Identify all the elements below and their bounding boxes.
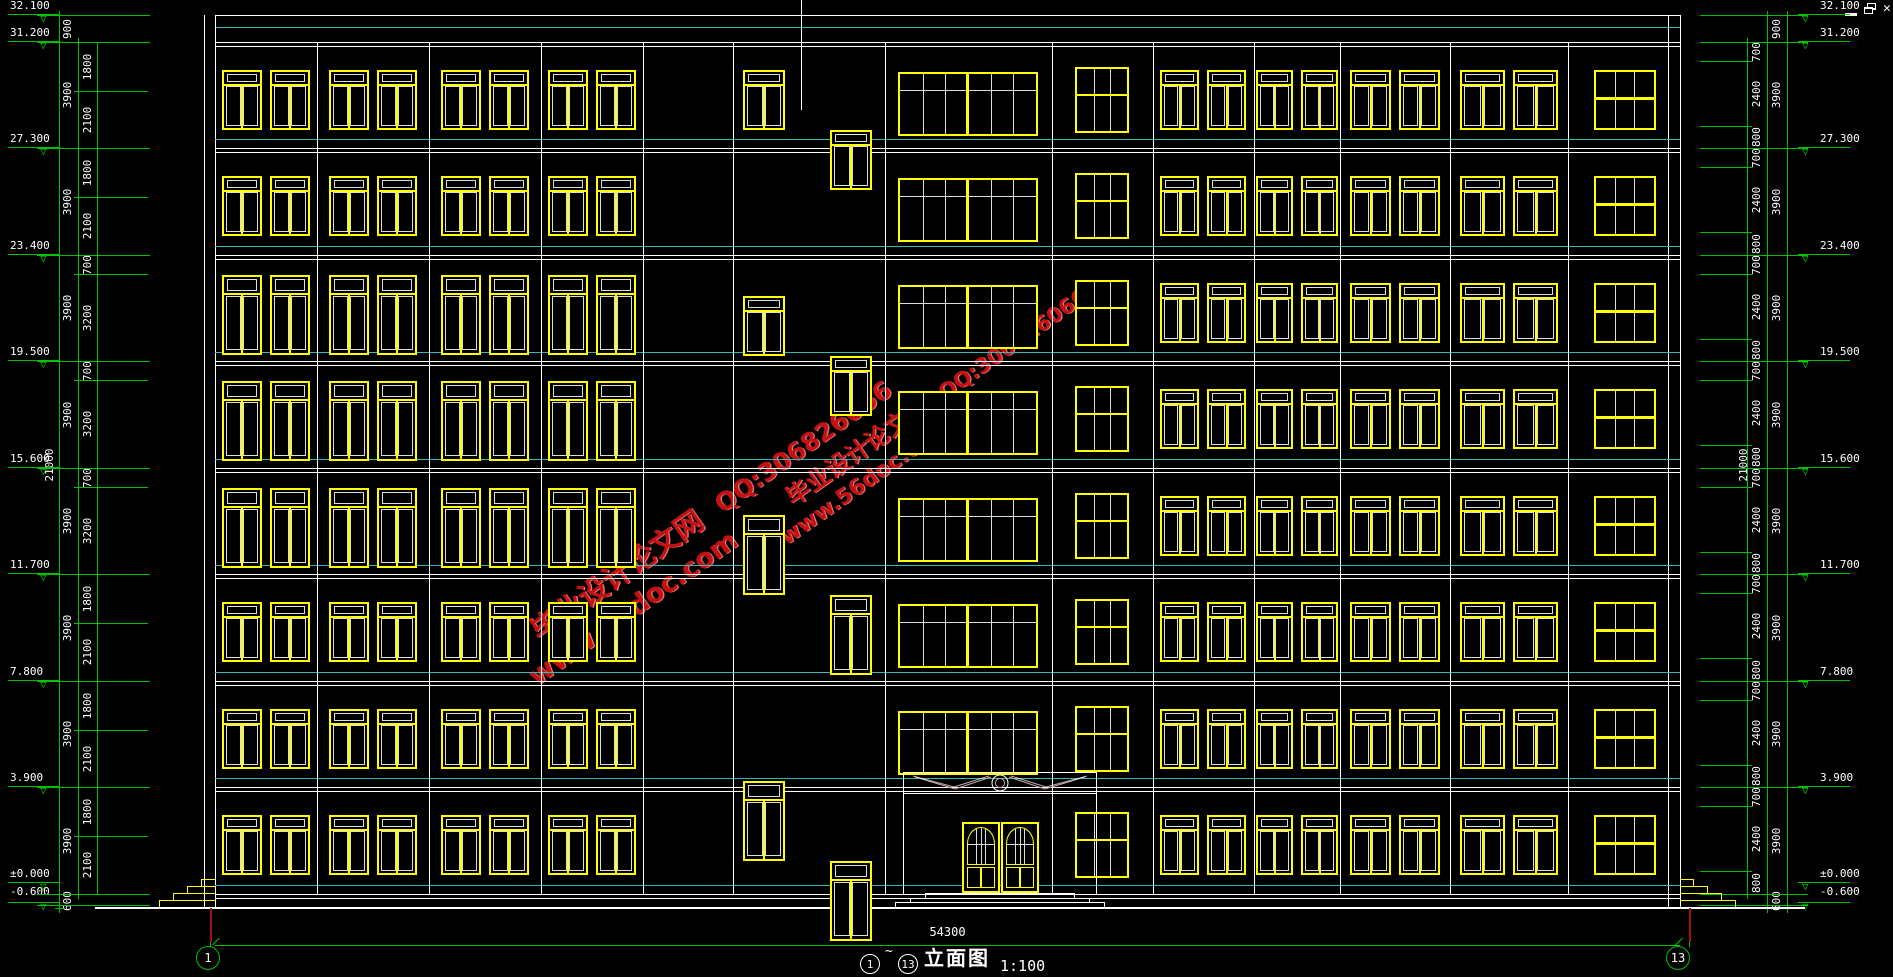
elevation-label: 27.300 [10,133,50,145]
elevation-label: -0.600 [10,886,50,898]
window [329,709,417,769]
window [743,781,785,861]
slab-line [215,672,1680,673]
dim-value: 2100 [82,98,94,142]
extension-line [1700,765,1747,766]
bay-divider [1254,42,1255,894]
floor-line [215,255,1680,256]
extension-line [78,91,148,92]
elevation-marker-line [8,902,60,903]
bay-divider [541,42,542,894]
elevation-label: 23.400 [10,240,50,252]
floor-line [215,361,1680,362]
window [830,130,872,190]
extension-line [1700,42,1808,43]
extension-line [1700,806,1747,807]
floor-line [215,152,1680,153]
window [441,176,529,236]
entrance-canopy [903,772,1097,794]
dim-value: 3900 [62,499,74,543]
extension-line [1700,61,1747,62]
elevation-marker-line [8,882,60,883]
triple-window [1594,602,1656,662]
extension-line [78,730,148,731]
dim-value: 700 [1751,349,1763,393]
dim-value: 3900 [1771,180,1783,224]
extension-line [78,380,148,381]
dim-value: 3900 [62,393,74,437]
extension-line [37,361,150,362]
bay-divider [643,42,644,894]
dim-value: 3200 [82,402,94,446]
window [441,709,529,769]
axis-stub [1689,942,1690,947]
side-steps [201,879,215,886]
elevation-label: 11.700 [10,559,50,571]
window [222,815,310,875]
extension-line [37,468,150,469]
window [1256,496,1338,556]
dim-value: 3900 [1771,712,1783,756]
extension-line [37,894,150,895]
dim-value: 1800 [82,684,94,728]
side-steps [1680,900,1736,907]
window [830,356,872,416]
dim-value: 700 [82,349,94,393]
window [329,602,417,662]
window [441,275,529,355]
window [329,176,417,236]
side-steps [187,886,215,893]
entrance-door [1001,822,1039,893]
building-outline [215,15,1680,16]
dim-value: 1800 [82,45,94,89]
bay-divider [1340,42,1341,894]
window [1256,815,1338,875]
elevation-label: 27.300 [1820,133,1860,145]
dim-value: 3900 [1771,73,1783,117]
dim-value: 2400 [1751,817,1763,861]
window [1460,496,1558,556]
dim-value: 2100 [82,737,94,781]
landing-window [898,72,1038,136]
extension-line [1700,658,1747,659]
square-window [1075,493,1129,559]
landing-window [898,711,1038,775]
window [1460,176,1558,236]
elevation-label: 19.500 [10,346,50,358]
elevation-label: ±0.000 [10,868,50,880]
bay-divider [1153,42,1154,894]
slab-line [215,246,1680,247]
window [1160,602,1246,662]
window [329,70,417,130]
title-axis-start: 1 [860,954,880,974]
dim-value: 800 [1751,861,1763,905]
extension-line [37,574,150,575]
elevation-label: 31.200 [10,27,50,39]
window [1350,815,1440,875]
bay-divider [1052,42,1053,894]
square-window [1075,599,1129,665]
elevation-label: 15.600 [1820,453,1860,465]
window [548,488,636,568]
elevation-label: 11.700 [1820,559,1860,571]
bay-divider [429,42,430,894]
window [329,275,417,355]
window [1350,709,1440,769]
triple-window [1594,389,1656,449]
window [743,296,785,356]
window [222,602,310,662]
window [1256,389,1338,449]
dim-value: 3900 [1771,499,1783,543]
restore-icon[interactable] [1864,3,1876,15]
bay-divider [885,42,886,894]
dim-value: 2100 [82,204,94,248]
landing-window [898,178,1038,242]
dim-value: 2400 [1751,604,1763,648]
extension-line [1700,445,1747,446]
axis-line [1689,908,1691,942]
dim-value: 2400 [1751,498,1763,542]
dim-value: 2400 [1751,72,1763,116]
slab-line [215,27,1680,28]
floor-line [215,472,1680,473]
extension-line [78,623,148,624]
dim-value: 700 [1751,562,1763,606]
window [1350,70,1440,130]
title-tilde: ~ [885,946,893,958]
window [548,176,636,236]
building-outline [1680,15,1681,908]
dim-value: 3900 [1771,286,1783,330]
window [1350,283,1440,343]
dim-value: 3900 [1771,606,1783,650]
bay-divider [733,42,734,894]
elevation-triangle-icon: ▽ [40,902,47,912]
extension-line [37,42,150,43]
dim-value: 1800 [82,790,94,834]
floor-line [215,42,1680,43]
triple-window [1594,815,1656,875]
floor-line [215,148,1680,149]
floor-line [215,259,1680,260]
entrance-door [962,822,1000,893]
window [329,381,417,461]
axis-bubble-13: 13 [1666,946,1690,970]
ground-line [95,907,1805,909]
floor-line [215,468,1680,469]
slab-line [215,459,1680,460]
elevation-label: 32.100 [1820,0,1860,12]
dim-value: 3200 [82,296,94,340]
elevation-label: 3.900 [10,772,43,784]
window [1256,176,1338,236]
dim-value: 2400 [1751,285,1763,329]
slab-line [215,139,1680,140]
floor-line [215,46,1680,47]
side-steps [1680,886,1708,893]
window [1256,709,1338,769]
square-window [1075,812,1129,878]
slab-line [215,565,1680,566]
dim-value: 700 [1751,30,1763,74]
side-steps [159,900,215,907]
window [222,709,310,769]
dim-value: 3900 [62,180,74,224]
triple-window [1594,283,1656,343]
triple-window [1594,709,1656,769]
building-outline [204,15,205,908]
slab-line [215,352,1680,353]
landing-window [898,391,1038,455]
extension-line [1700,339,1747,340]
window [548,815,636,875]
triple-window [1594,70,1656,130]
window [548,275,636,355]
extension-line [1700,487,1747,488]
dim-value: 3900 [1771,819,1783,863]
elevation-label: 3.900 [1820,772,1853,784]
dim-value: 2400 [1751,178,1763,222]
title-name: 立面图 [924,952,990,964]
title-scale: 1:100 [1000,960,1045,972]
elevation-label: 23.400 [1820,240,1860,252]
dim-value: 600 [1771,879,1783,923]
cad-elevation-canvas: ✕ 54300 21000 21000 1 13 1 ~ 13 立面图 1:10… [0,0,1893,977]
extension-line [1700,871,1747,872]
dim-value: 600 [62,879,74,923]
elevation-label: 15.600 [10,453,50,465]
dim-value: 700 [82,456,94,500]
axis-bubble-1: 1 [196,946,220,970]
slab-line [215,885,1680,886]
floor-line [215,681,1680,682]
window [1256,70,1338,130]
extension-line [1700,15,1808,16]
dim-value: 3900 [62,819,74,863]
extension-line [1700,380,1747,381]
window [1460,709,1558,769]
window [1160,176,1246,236]
window [329,815,417,875]
window [830,595,872,675]
extension-line [1700,681,1808,682]
triple-window [1594,176,1656,236]
entrance-post [903,794,904,894]
bay-divider [1450,42,1451,894]
extension-line [1700,574,1808,575]
window [441,488,529,568]
extension-line [1700,274,1747,275]
extension-line [78,274,148,275]
elevation-label: 32.100 [10,0,50,12]
extension-line [37,681,150,682]
dim-value: 700 [1751,669,1763,713]
window [1460,70,1558,130]
extension-line [1700,787,1808,788]
window [222,176,310,236]
extension-line [78,836,148,837]
overall-width-dim: 54300 [900,926,995,938]
dim-value: 3900 [62,712,74,756]
dim-value: 2100 [82,630,94,674]
extension-line [37,15,150,16]
elevation-label: 31.200 [1820,27,1860,39]
floor-line [215,365,1680,366]
dim-value: 700 [1751,136,1763,180]
window [1160,70,1246,130]
square-window [1075,173,1129,239]
dim-value: 3900 [62,73,74,117]
floor-line [215,578,1680,579]
window [548,709,636,769]
extension-line [78,197,148,198]
dim-value: 3200 [82,509,94,553]
entrance-post [1096,794,1097,894]
construction-line [801,0,802,110]
extension-line [1700,700,1747,701]
window [1460,389,1558,449]
axis-line [210,908,212,942]
side-steps [173,893,215,900]
extension-line [37,787,150,788]
extension-line [1700,232,1747,233]
axis-stub [210,942,211,947]
elevation-label: ±0.000 [1820,868,1860,880]
floor-line [215,574,1680,575]
title-axis-end: 13 [898,954,918,974]
dim-value: 700 [1751,775,1763,819]
square-window [1075,706,1129,772]
extension-line [1700,552,1747,553]
elevation-triangle-icon: ▽ [1802,882,1809,892]
extension-line [1700,255,1808,256]
bay-divider [317,42,318,894]
window [743,70,785,130]
landing-window [898,498,1038,562]
dim-value: 900 [1771,7,1783,51]
window [830,861,872,941]
window [1256,283,1338,343]
square-window [1075,67,1129,133]
landing-window [898,604,1038,668]
window [222,70,310,130]
window [1256,602,1338,662]
dim-value: 3900 [1771,393,1783,437]
window [1460,815,1558,875]
window [548,381,636,461]
extension-line [1700,468,1808,469]
dim-value: 1800 [82,151,94,195]
window [441,70,529,130]
window [222,275,310,355]
square-window [1075,280,1129,346]
window [222,381,310,461]
extension-line [1700,167,1747,168]
dim-value: 3900 [62,286,74,330]
window [1350,176,1440,236]
extension-line [78,487,148,488]
dim-value: 2100 [82,843,94,887]
window [441,602,529,662]
extension-line [1700,361,1808,362]
dim-value: 2400 [1751,711,1763,755]
window [548,602,636,662]
window [1460,602,1558,662]
elevation-label: 7.800 [1820,666,1853,678]
window [441,815,529,875]
window [1160,389,1246,449]
dim-value: 1800 [82,577,94,621]
dim-value: 3900 [62,606,74,650]
floor-line [215,685,1680,686]
dim-value: 700 [1751,243,1763,287]
window [1160,283,1246,343]
window [548,70,636,130]
elevation-label: -0.600 [1820,886,1860,898]
window [743,515,785,595]
window [1160,496,1246,556]
entrance-steps [895,902,1105,907]
landing-window [898,285,1038,349]
extension-line [37,148,150,149]
elevation-label: 7.800 [10,666,43,678]
extension-line [1700,126,1747,127]
triple-window [1594,496,1656,556]
window [1350,389,1440,449]
window [441,381,529,461]
overall-dim-line [215,945,1680,946]
dim-value: 2400 [1751,391,1763,435]
window [1350,496,1440,556]
extension-line [1700,148,1808,149]
window [1160,815,1246,875]
window [1160,709,1246,769]
dim-value: 700 [82,243,94,287]
window [222,488,310,568]
elevation-label: 19.500 [1820,346,1860,358]
extension-line [37,255,150,256]
bay-divider [1568,42,1569,894]
extension-line [37,905,150,906]
window [329,488,417,568]
extension-line [1700,593,1747,594]
window [1350,602,1440,662]
dim-value: 700 [1751,456,1763,500]
close-icon[interactable]: ✕ [1883,3,1891,15]
side-steps [1680,879,1694,886]
side-steps [1680,893,1722,900]
window [1460,283,1558,343]
square-window [1075,386,1129,452]
